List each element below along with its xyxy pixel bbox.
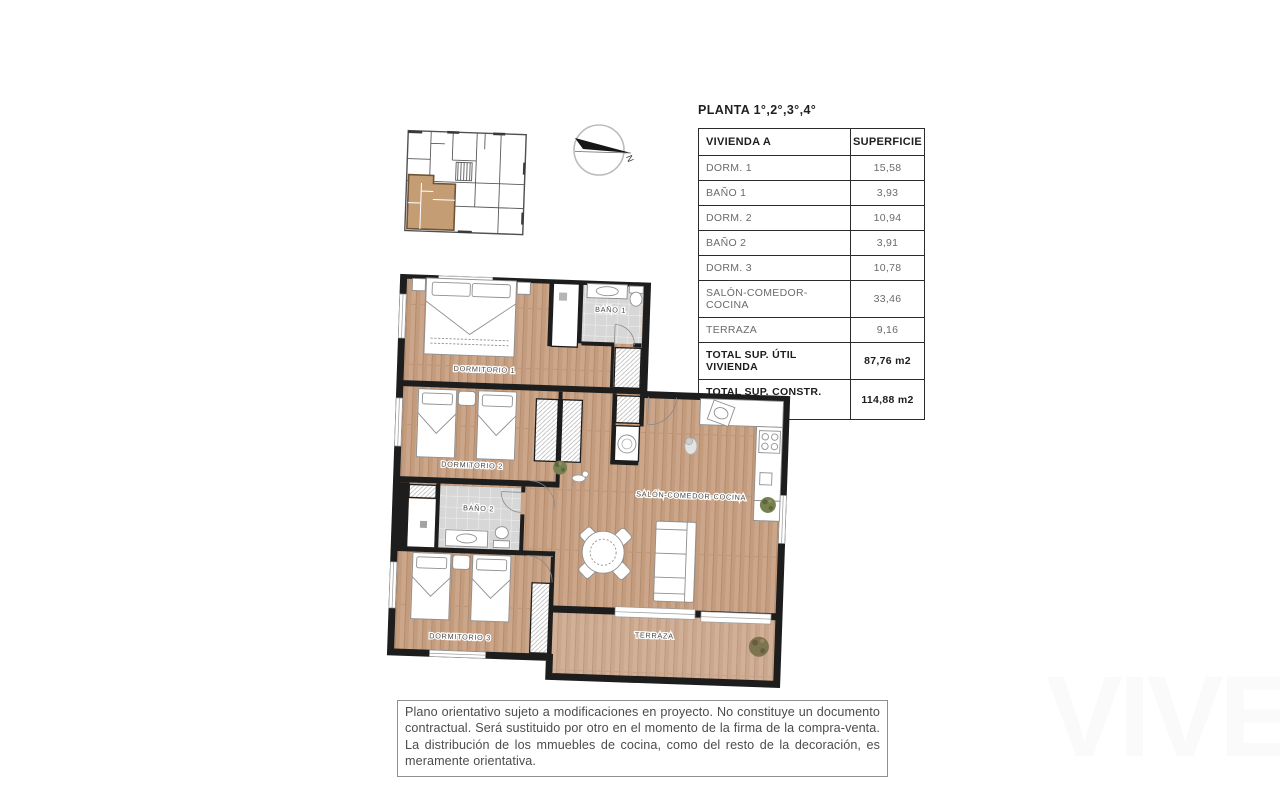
apartment-floor-plan: DORMITORIO 1 BAÑO 1 DORMITORIO 2 BAÑO 2 … [384, 274, 800, 700]
disclaimer-text: Plano orientativo sujeto a modificacione… [405, 704, 880, 770]
row-label: BAÑO 1 [699, 181, 851, 206]
building-key-plan [397, 118, 533, 247]
wardrobe-icon [409, 484, 436, 498]
counter-sink-icon [760, 473, 772, 485]
compass-north-label: N [624, 154, 636, 164]
table-header-surface: SUPERFICIE [851, 129, 925, 156]
row-value: 10,94 [851, 206, 925, 231]
row-value: 33,46 [851, 281, 925, 318]
wardrobe-icon [560, 400, 582, 463]
closet-dorm1 [551, 282, 579, 347]
wardrobe-icon [534, 399, 558, 462]
room-label-bano-2: BAÑO 2 [463, 503, 494, 513]
row-label: DORM. 1 [699, 156, 851, 181]
page-title: PLANTA 1°,2°,3°,4° [698, 103, 816, 117]
table-row: BAÑO 2 3,91 [699, 231, 925, 256]
north-compass-icon: N [572, 120, 638, 180]
double-bed-icon [410, 277, 531, 357]
table-row: BAÑO 1 3,93 [699, 181, 925, 206]
closet-shelf-icon [559, 293, 567, 301]
wardrobe-icon [530, 583, 550, 654]
table-row: DORM. 3 10,78 [699, 256, 925, 281]
entry-closet [616, 396, 641, 424]
row-value: 3,91 [851, 231, 925, 256]
row-label: DORM. 2 [699, 206, 851, 231]
total-value: 114,88 m2 [851, 380, 925, 420]
row-value: 3,93 [851, 181, 925, 206]
table-row: DORM. 2 10,94 [699, 206, 925, 231]
row-value: 9,16 [851, 318, 925, 343]
row-value: 15,58 [851, 156, 925, 181]
row-label: DORM. 3 [699, 256, 851, 281]
floor-plan-sheet: N PLANTA 1°,2°,3°,4° VIVIENDA A SUPERFIC… [0, 0, 1280, 800]
person-icon [685, 438, 698, 455]
toilet-icon [495, 526, 508, 538]
shower-drain-icon [420, 521, 427, 528]
room-label-terraza: TERRAZA [635, 630, 674, 640]
watermark: VIVE [1046, 660, 1280, 775]
disclaimer-note: Plano orientativo sujeto a modificacione… [397, 700, 888, 777]
wardrobe-icon [614, 348, 641, 389]
row-label: BAÑO 2 [699, 231, 851, 256]
table-header-row: VIVIENDA A SUPERFICIE [699, 129, 925, 156]
table-header-unit: VIVIENDA A [699, 129, 851, 156]
sofa-icon [653, 521, 696, 602]
cooktop-icon [759, 431, 781, 454]
room-label-bano-1: BAÑO 1 [595, 305, 626, 315]
total-value: 87,76 m2 [851, 343, 925, 380]
table-row: DORM. 1 15,58 [699, 156, 925, 181]
washing-machine-icon [618, 435, 637, 454]
row-value: 10,78 [851, 256, 925, 281]
